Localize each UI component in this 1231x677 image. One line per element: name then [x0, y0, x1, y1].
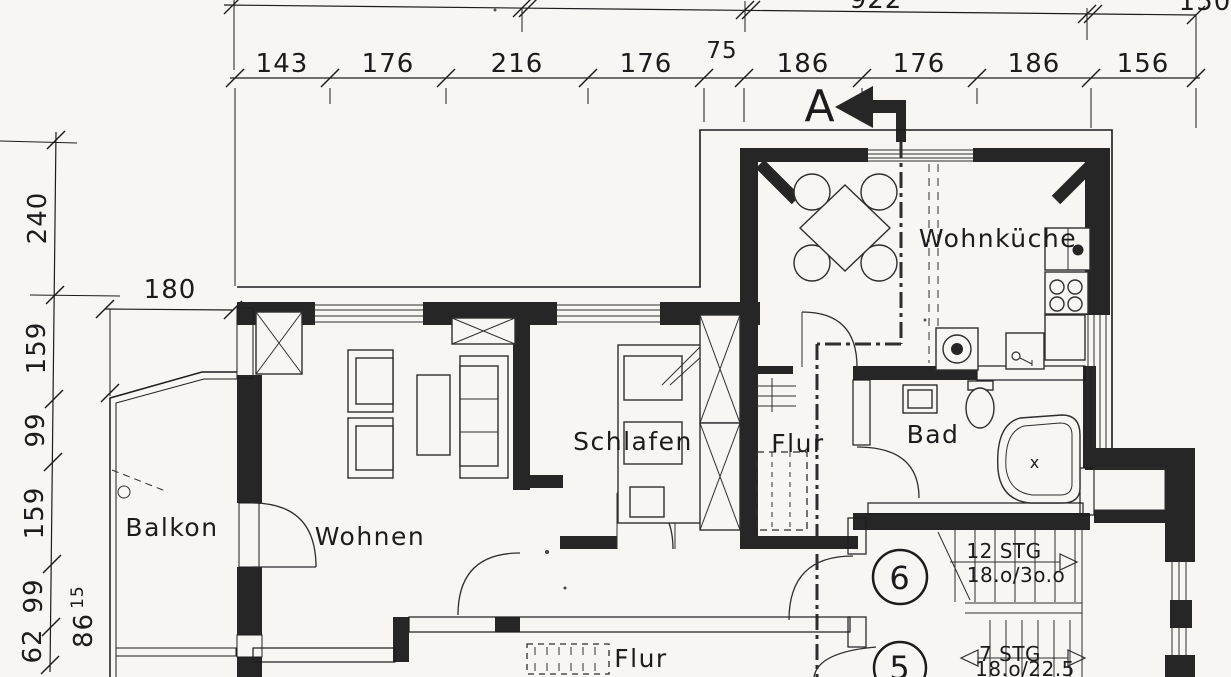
dim-label-86-15: 8615 — [68, 585, 99, 648]
dim-label-top-partial-2: 150 — [1179, 0, 1231, 17]
floorplan-svg: 922 150 143 176 216 176 75 186 176 186 1… — [0, 0, 1231, 677]
dining-set — [794, 174, 897, 281]
room-label-balkon: Balkon — [125, 513, 218, 542]
living-furniture — [256, 312, 515, 478]
detail-dimension-180: 180 — [96, 275, 242, 402]
section-marker-a: A — [804, 81, 906, 142]
dim-label-99a: 99 — [21, 412, 51, 447]
room-label-bad: Bad — [907, 420, 960, 449]
coat-hooks-icon — [752, 378, 796, 412]
corner-brace-left — [760, 164, 796, 200]
dim-label-15-sup: 15 — [68, 585, 88, 609]
dim-label-156: 156 — [1117, 49, 1170, 79]
dim-label-99b: 99 — [19, 578, 49, 613]
stair-text-12stg: 12 STG — [966, 539, 1041, 563]
dim-label-186b: 186 — [1008, 49, 1061, 79]
room-label-flur-upper: Flur — [771, 429, 824, 458]
bathtub-cross-mark: x — [1030, 453, 1040, 472]
wardrobe — [700, 315, 740, 530]
dim-label-86: 86 — [69, 613, 99, 648]
left-dimension-chain: 240 159 99 159 99 62 8615 — [0, 131, 120, 674]
balcony-drain-icon — [118, 486, 130, 498]
balcony-railing — [116, 648, 236, 656]
dim-label-176c: 176 — [893, 49, 946, 79]
stair-text-18-30: 18.o/3o.o — [967, 563, 1065, 587]
pillow — [624, 356, 682, 400]
section-label: A — [804, 81, 835, 132]
stair-door-arc — [789, 556, 853, 620]
entry-door-arc — [458, 553, 520, 615]
room-labels: Wohnküche Schlafen Flur Bad Balkon Wohne… — [125, 224, 1077, 673]
dim-label-180: 180 — [144, 275, 197, 305]
kitchen-sink — [1006, 333, 1044, 369]
hall-door-arc — [814, 647, 876, 677]
balcony-door-arc — [252, 503, 316, 567]
toilet — [966, 388, 994, 428]
room-label-wohnkueche: Wohnküche — [919, 224, 1077, 253]
dim-label-176a: 176 — [362, 49, 415, 79]
blanket — [630, 487, 664, 517]
kitchen-door-arc — [802, 312, 857, 367]
dim-label-159a: 159 — [22, 322, 52, 375]
dim-label-143: 143 — [256, 49, 309, 79]
dim-label-top-partial-1: 922 — [850, 0, 903, 15]
dim-label-216: 216 — [491, 49, 544, 79]
bath-door-arc — [857, 447, 919, 498]
room-label-schlafen: Schlafen — [573, 427, 693, 456]
dim-label-159b: 159 — [20, 487, 50, 540]
dim-label-62: 62 — [18, 628, 48, 663]
entry-mat — [527, 644, 609, 674]
section-arrow-icon — [835, 86, 873, 128]
unit-number-top: 6 — [889, 559, 910, 597]
room-label-wohnen: Wohnen — [315, 522, 425, 551]
dim-label-240: 240 — [23, 192, 53, 245]
coffee-table — [417, 375, 450, 455]
section-arrow-stem — [896, 104, 906, 142]
kitchen-counter — [1045, 315, 1085, 360]
dim-label-75: 75 — [706, 38, 737, 64]
unit-circle-5: 5 — [874, 642, 926, 677]
dim-label-186a: 186 — [777, 49, 830, 79]
floorplan-scan: 922 150 143 176 216 176 75 186 176 186 1… — [0, 0, 1231, 677]
dim-label-176b: 176 — [620, 49, 673, 79]
room-label-flur-lower: Flur — [614, 644, 667, 673]
stair-text-18-225: 18.o/22.5 — [975, 657, 1075, 677]
unit-circle-6: 6 — [873, 550, 927, 604]
unit-number-bottom: 5 — [889, 649, 910, 677]
stair-niche — [1094, 468, 1165, 510]
coat-closet-dashed — [757, 452, 807, 530]
